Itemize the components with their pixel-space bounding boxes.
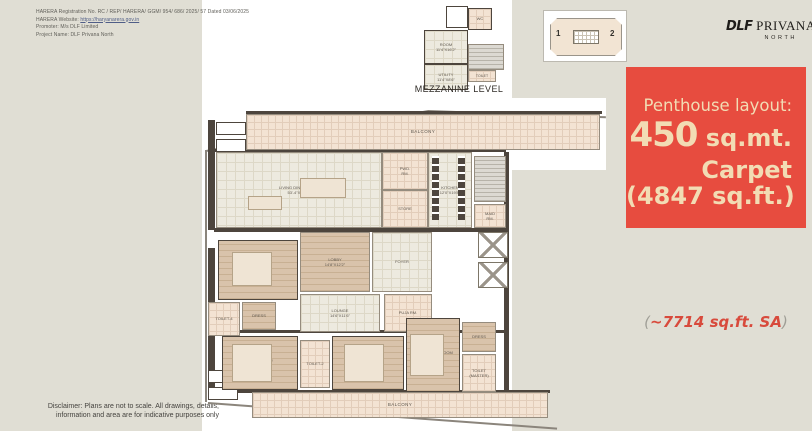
key-plan-unit-1: 1: [556, 29, 560, 38]
furniture-sofa: [248, 196, 282, 210]
boundary-line: [205, 150, 207, 402]
kitchen-counter: [458, 156, 465, 220]
room-mezz-toilet: TOILET: [468, 70, 496, 82]
disclaimer-line2: information and area are for indicative …: [33, 411, 219, 420]
privana-wordmark: PRIVANA: [756, 18, 812, 33]
room-foyer: FOYER: [372, 232, 432, 292]
room-balcony-bottom: BALCONY: [252, 392, 548, 418]
offer-box: Penthouse layout: 450 sq.mt. Carpet (484…: [626, 67, 806, 228]
harera-line4: Project Name: DLF Privana North: [36, 32, 249, 40]
lift-shaft: [478, 232, 508, 258]
harera-registration-block: HARERA Registration No. RC / REP/ HARERA…: [36, 9, 249, 39]
room-balcony-top: BALCONY: [246, 114, 600, 150]
room-store: STORE: [382, 190, 428, 228]
room-master-dress: DRESS: [462, 322, 496, 352]
furniture-bed: [410, 334, 444, 376]
wall-segment: [208, 120, 215, 230]
mezz-shaft-box: [446, 6, 468, 28]
brand-logo-sub: NORTH: [726, 35, 806, 41]
offer-carpet-label: Carpet: [626, 158, 792, 183]
harera-website-label: HARERA Website:: [36, 17, 80, 23]
key-plan-unit-2: 2: [610, 29, 614, 38]
room-lounge: LOUNGE 14'6"X11'6": [300, 294, 380, 332]
furniture-bed: [232, 344, 272, 382]
room-mezz-room: ROOM 11'4"X16'2": [424, 30, 468, 64]
brochure-page: HARERA Registration No. RC / REP/ HARERA…: [0, 0, 812, 431]
brand-logo-line1: DLF PRIVANA: [726, 18, 806, 34]
furniture-dining-table: [300, 178, 346, 198]
harera-website-link[interactable]: https://haryanarera.gov.in: [80, 17, 139, 23]
key-plan-core: [573, 30, 599, 44]
room-living-dining: LIVING DINING AREA 53'-4"X27'-2": [216, 152, 382, 228]
offer-carpet-sqft: (4847 sq.ft.): [626, 183, 792, 211]
super-area-note: (~7714 sq.ft. SA): [626, 313, 806, 331]
furniture-bed: [344, 344, 384, 382]
disclaimer-line1: Disclaimer: Plans are not to scale. All …: [33, 402, 219, 411]
offer-area-unit: sq.mt.: [697, 124, 792, 152]
room-lobby: LOBBY 14'8"X12'2": [300, 232, 370, 292]
dlf-wordmark: DLF: [726, 19, 752, 34]
harera-line2: HARERA Website: https://haryanarera.gov.…: [36, 17, 249, 25]
room-mezz-wc: WC: [468, 8, 492, 30]
room-maid: MAID RM.: [474, 204, 506, 228]
room-master-toilet: TOILET (MASTER): [462, 354, 496, 392]
lift-shaft: [478, 262, 508, 288]
kitchen-counter: [432, 156, 439, 220]
sa-close-paren: ): [782, 313, 788, 331]
main-staircase: [474, 156, 506, 202]
ac-ledge-box: [216, 122, 246, 135]
harera-line1: HARERA Registration No. RC / REP/ HARERA…: [36, 9, 249, 17]
mezz-staircase: [468, 44, 504, 70]
offer-area-line: 450 sq.mt.: [626, 118, 792, 152]
furniture-bed: [232, 252, 272, 286]
brand-logo: DLF PRIVANA NORTH: [726, 18, 806, 41]
harera-line3: Promoter: M/s DLF Limited: [36, 24, 249, 32]
room-powder: PWD. RM.: [382, 152, 428, 190]
offer-area-value: 450: [629, 115, 697, 155]
room-toilet-4: TOILET-4: [208, 302, 240, 336]
room-dress-4: DRESS: [242, 302, 276, 330]
sa-text: ~7714 sq.ft. SA: [650, 313, 782, 331]
ac-ledge-box: [216, 139, 246, 152]
key-plan: 1 2: [543, 10, 627, 62]
disclaimer: Disclaimer: Plans are not to scale. All …: [33, 402, 219, 421]
mezzanine-level-caption: MEZZANINE LEVEL: [406, 84, 512, 94]
room-toilet-2: TOILET-2: [300, 340, 330, 388]
offer-intro: Penthouse layout:: [626, 97, 792, 116]
